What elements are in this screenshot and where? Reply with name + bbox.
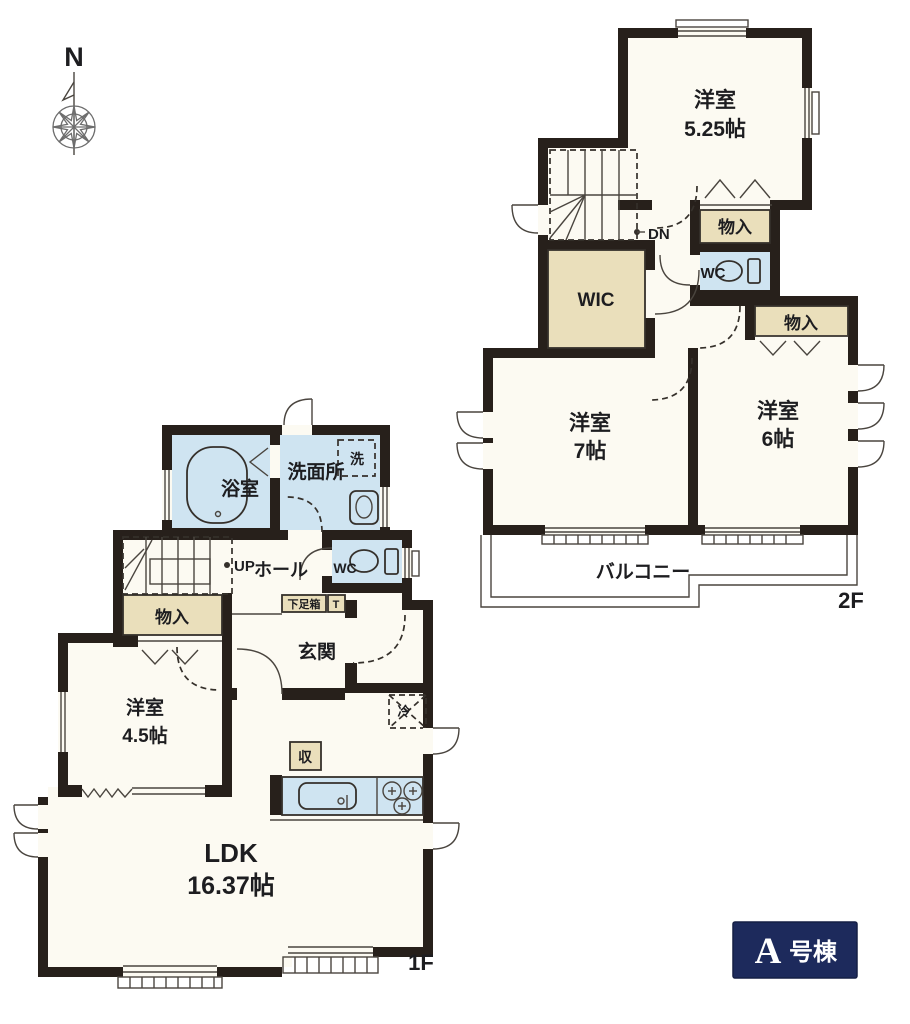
balcony-label: バルコニー — [596, 561, 691, 583]
compass-needle-flag — [63, 82, 74, 100]
stairs-1f-up-label: UP — [234, 558, 255, 575]
room-1f-washroom-label: 洗面所 — [287, 460, 344, 483]
room-1f-bedroom45-size: 4.5帖 — [122, 724, 167, 747]
room-1f-bedroom45-name: 洋室 — [126, 696, 164, 719]
room-ldk-name: LDK — [204, 838, 258, 868]
storage-label: 収 — [298, 749, 313, 765]
building-badge-suffix: 号棟 — [789, 939, 838, 966]
room-2f-bedroom525-size: 5.25帖 — [684, 118, 746, 141]
laundry-label: 洗 — [350, 451, 364, 467]
room-2f-bedroom6-size: 6帖 — [762, 428, 795, 451]
building-badge-letter: A — [755, 931, 782, 972]
room-2f-wc-label: WC — [701, 265, 726, 282]
room-2f-bedroom7-name: 洋室 — [569, 411, 611, 435]
floor-2f-label: 2F — [838, 588, 864, 613]
room-1f-hall-label: ホール — [254, 560, 308, 580]
room-ldk-size: 16.37帖 — [187, 872, 275, 900]
shoe-box-t-label: T — [333, 599, 340, 611]
floorplan-page: N — [0, 0, 910, 1024]
floor-1f-label: 1F — [408, 950, 434, 975]
room-2f-wic-label: WIC — [578, 290, 615, 311]
shoe-box-label: 下足箱 — [288, 597, 321, 611]
compass-north-label: N — [64, 42, 84, 72]
compass-rose-icon — [53, 106, 95, 148]
room-2f-closet-side-label: 物入 — [784, 313, 818, 333]
room-2f-closet-top-label: 物入 — [718, 217, 752, 237]
room-2f-bedroom6-name: 洋室 — [757, 399, 799, 423]
floor-1f-plan: 洗 UP — [14, 399, 459, 988]
compass: N — [53, 42, 95, 155]
room-1f-closet-label: 物入 — [155, 607, 189, 627]
refrigerator-label: 冷 — [397, 704, 410, 719]
room-2f-bedroom7-size: 7帖 — [574, 440, 607, 463]
floorplan-drawing: N — [0, 0, 910, 1024]
floor-2f-plan: DN — [457, 20, 884, 613]
room-1f-bath-label: 浴室 — [221, 477, 259, 500]
room-1f-entrance-label: 玄関 — [298, 640, 336, 663]
room-2f-bedroom525-name: 洋室 — [694, 88, 736, 112]
room-1f-wc-label: WC — [333, 560, 356, 576]
building-badge: A 号棟 — [733, 922, 857, 978]
